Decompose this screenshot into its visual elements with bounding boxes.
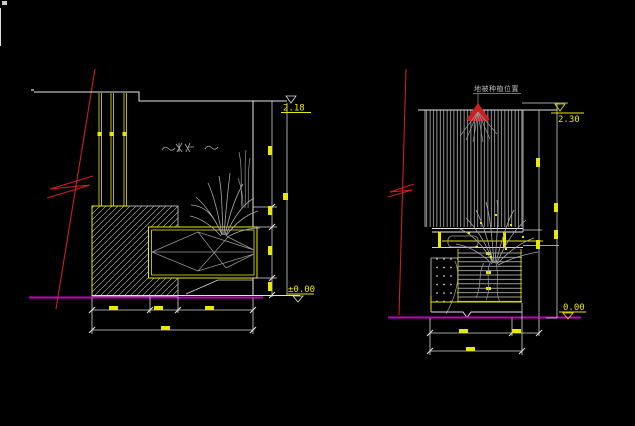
right-dimensions-right bbox=[522, 103, 568, 318]
timber-screen bbox=[425, 110, 523, 232]
level-triangle-icon bbox=[293, 296, 303, 302]
screen-artifacts bbox=[1, 1, 35, 91]
level-triangle-icon bbox=[286, 96, 296, 103]
level-marker-top-right: 2.30 bbox=[551, 104, 584, 125]
cad-canvas[interactable]: 2.18 ±0.00 bbox=[0, 0, 635, 426]
bottom-dimensions-left bbox=[89, 297, 256, 334]
left-elevation: 2.18 ±0.00 bbox=[29, 69, 315, 334]
wall-top-outline bbox=[34, 92, 287, 101]
right-dimensions-left bbox=[253, 101, 288, 298]
section-cut-line-right bbox=[388, 69, 414, 315]
bottom-dimensions-right bbox=[427, 303, 542, 355]
level-marker-top-left: 2.18 bbox=[281, 96, 311, 114]
gravel-fill bbox=[431, 258, 458, 314]
reed-plant bbox=[238, 150, 250, 208]
level-value-top-right: 2.30 bbox=[558, 115, 580, 125]
curb-leader bbox=[186, 280, 253, 294]
drawing-layer: 2.18 ±0.00 bbox=[0, 0, 635, 426]
right-elevation: 地被种植位置 2.30 bbox=[388, 69, 586, 355]
wave-annotation bbox=[162, 143, 218, 152]
feature-panel bbox=[149, 227, 258, 278]
section-cut-line-left bbox=[47, 69, 95, 309]
plants-left bbox=[190, 150, 260, 237]
trellis-posts bbox=[98, 93, 127, 206]
level-marker-bottom-left: ±0.00 bbox=[286, 285, 315, 302]
level-value-top-left: 2.18 bbox=[283, 104, 305, 114]
plant-label: 地被种植位置 bbox=[474, 84, 519, 93]
